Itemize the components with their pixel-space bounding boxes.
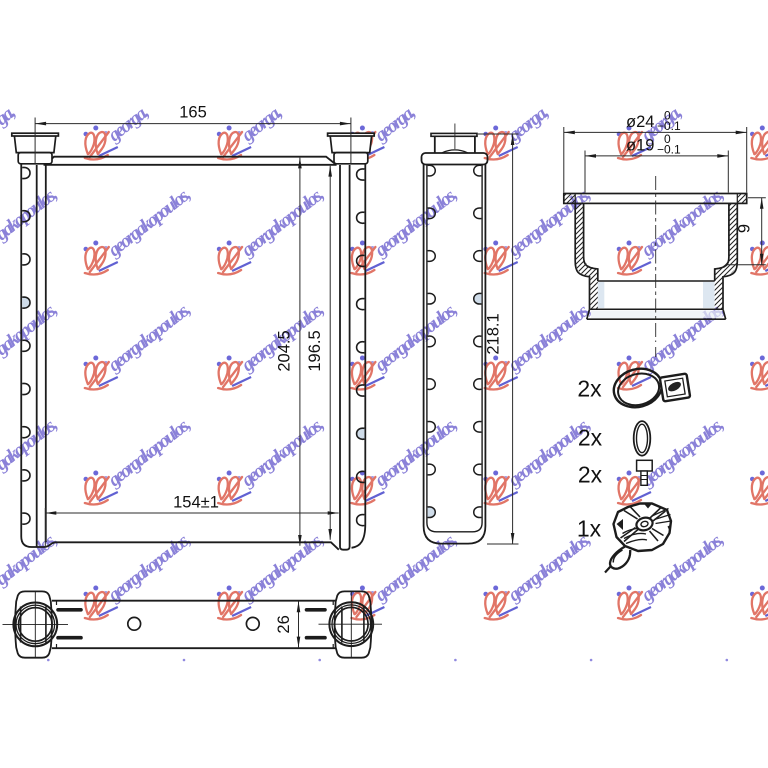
svg-text:26: 26 — [275, 615, 293, 633]
svg-text:−0.1: −0.1 — [657, 119, 681, 133]
svg-text:165: 165 — [179, 104, 207, 122]
svg-text:2x: 2x — [578, 462, 603, 488]
svg-text:1x: 1x — [577, 516, 602, 542]
svg-text:ø19: ø19 — [626, 137, 654, 155]
svg-text:−0.1: −0.1 — [657, 143, 681, 157]
svg-text:154±1: 154±1 — [173, 494, 219, 512]
svg-text:218.1: 218.1 — [485, 313, 503, 354]
svg-text:9: 9 — [736, 224, 754, 233]
svg-text:196.5: 196.5 — [306, 330, 324, 371]
svg-text:2x: 2x — [578, 425, 603, 451]
svg-text:204.5: 204.5 — [275, 330, 293, 371]
svg-text:2x: 2x — [577, 376, 602, 402]
svg-text:ø24: ø24 — [626, 113, 654, 131]
